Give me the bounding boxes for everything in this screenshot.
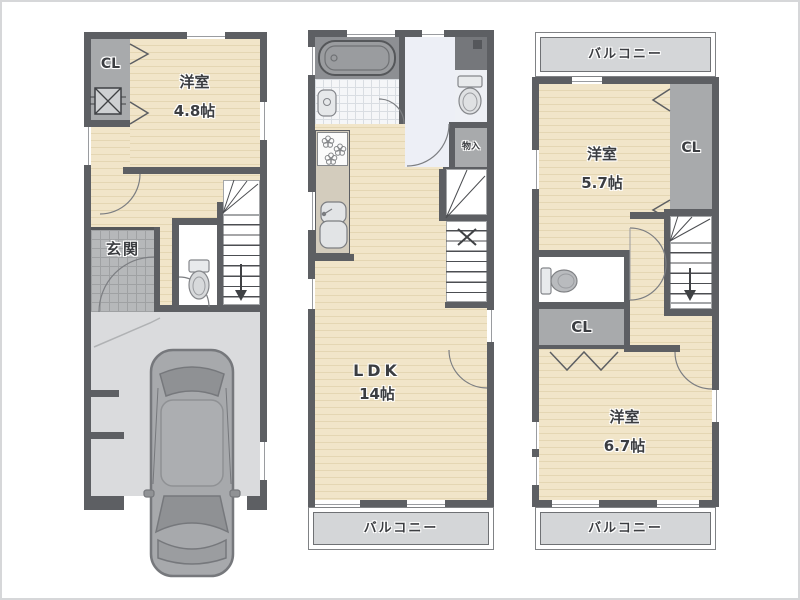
floor3-toilet-top-wall <box>532 250 630 257</box>
floor3-toilet-bottom-wall <box>532 302 630 309</box>
floor3-balcony-bottom: バルコニー <box>535 507 716 550</box>
floor3-room-bottom-label: 洋室6.7帖 <box>562 403 687 460</box>
floor3-room2-top-wall <box>624 345 680 352</box>
floor3-toilet-room <box>539 257 624 302</box>
floor3-wall-under-stairs <box>664 309 719 316</box>
floor3-top-window <box>572 77 602 84</box>
floor3-stairs-winder <box>670 216 712 243</box>
floor3-closet-mid-label: CL <box>539 316 624 339</box>
floor3-right-window <box>712 390 719 422</box>
floor3-balcony-door1 <box>552 500 599 507</box>
floor3-hall-top-wall <box>630 212 670 219</box>
floor3-mid-column-wall <box>624 250 630 345</box>
floor3-room-top-label: 洋室5.7帖 <box>547 140 657 197</box>
floor3-closet-right-label: CL <box>670 138 712 159</box>
floor3-balcony-bottom-label: バルコニー <box>588 519 663 539</box>
floor3-left-window3 <box>532 457 539 485</box>
floor3-wall-under-cl <box>664 209 719 216</box>
floor3-balcony-top: バルコニー <box>535 32 716 77</box>
floor3-balcony-door2 <box>657 500 699 507</box>
floor3-balcony-bottom-slab: バルコニー <box>540 512 711 545</box>
floor3-stairs-flight <box>670 243 712 303</box>
floor3-balcony-top-slab: バルコニー <box>540 37 711 72</box>
floor3-wall-under-clmid <box>532 345 630 349</box>
floor3-plan: バルコニー バルコニー 洋室 <box>2 2 800 600</box>
floor-plan-image: CL 洋室4.8帖 玄関 <box>0 0 800 600</box>
floor3-left-window1 <box>532 150 539 189</box>
floor3-left-window2 <box>532 422 539 449</box>
floor3-balcony-top-label: バルコニー <box>588 45 663 65</box>
